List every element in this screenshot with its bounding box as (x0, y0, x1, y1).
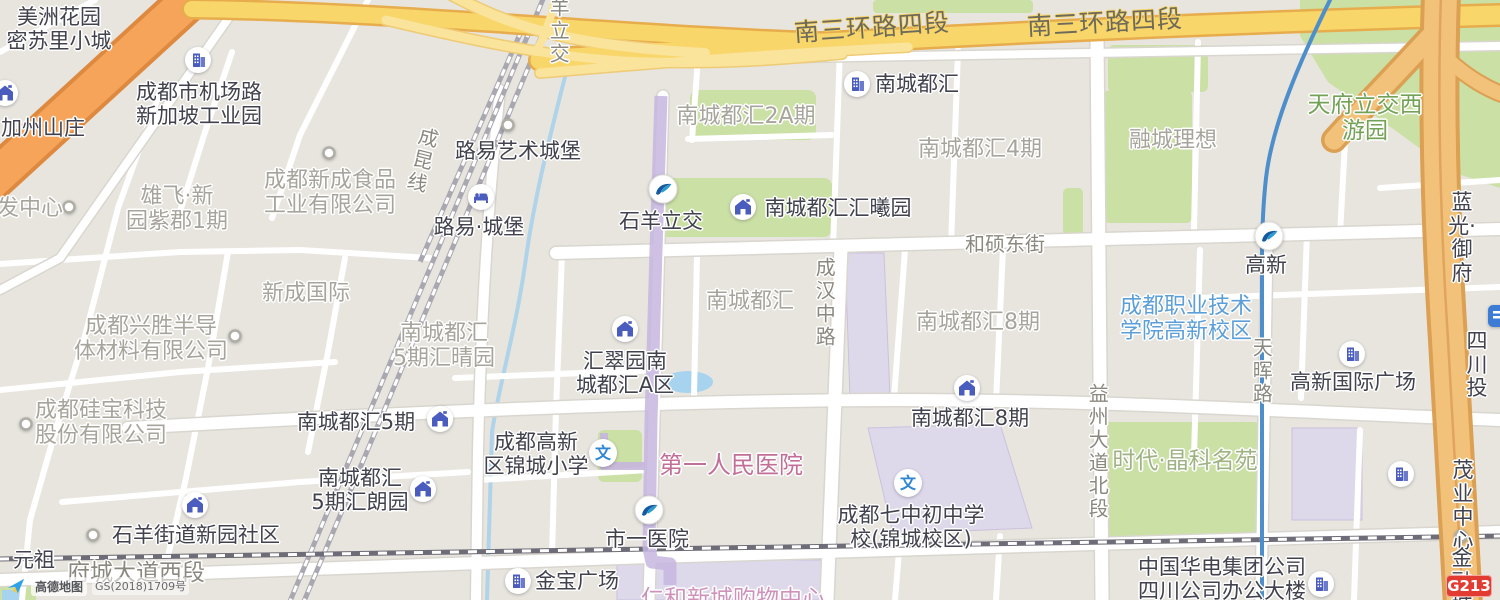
area-label-xincheng-food-co: 成都新成食品 工业有限公司 (264, 169, 396, 219)
road-label-chenghan-middle-road: 成汉中路 (813, 257, 836, 349)
area-label-ncdh-5qi-huiqingyuan: 南城都汇 5期汇晴园 (393, 322, 495, 372)
road-label-heshuo-east-street: 和硕东街 (965, 233, 1045, 256)
hospital-strip (845, 253, 890, 398)
poi-label-ncdh-8qi[interactable]: 南城都汇8期 (911, 407, 1029, 431)
poi-label-jincheng-primary-school[interactable]: 成都高新 区锦城小学 (484, 431, 589, 478)
home-icon-huicuiyuan-a[interactable] (611, 315, 639, 347)
poi-label-renhe-xincheng-mall[interactable]: 仁和新城购物中心 (641, 586, 825, 600)
home-icon-huixiyuan[interactable] (729, 193, 757, 225)
poi-label-vocational-college-gaoxin[interactable]: 成都职业技术 学院高新校区 (1120, 295, 1252, 345)
road-label-tianhui-road: 天晖路 (1250, 337, 1273, 406)
area-label-meizhou-garden[interactable]: 美洲花园 密苏里小城 (7, 6, 112, 53)
poi-label-huicuiyuan-a[interactable]: 汇翠园南 城都汇A区 (576, 350, 674, 397)
area-label-rongcheng-lixiang: 融城理想 (1129, 129, 1217, 154)
poi-label-ncdh-5qi[interactable]: 南城都汇5期 (297, 411, 415, 435)
area-label-xiongfei-zijun-1qi: 雄飞·新 园紫郡1期 (126, 185, 228, 235)
dot-icon-xingsheng-semiconductor[interactable] (227, 328, 243, 348)
poi-label-luyi-art-castle[interactable]: 路易艺术城堡 (455, 140, 581, 164)
poi-label-ncdh-huixiyuan[interactable]: 南城都汇汇曦园 (765, 197, 912, 221)
poi-label-gaoxin-international-plaza[interactable]: 高新国际广场 (1290, 371, 1416, 395)
poi-label-chengdu-no7-middle-school[interactable]: 成都七中初中学 校(锦城校区) (838, 504, 985, 551)
dot-icon-xincheng-food[interactable] (321, 145, 337, 165)
area-label-ncdh-4qi: 南城都汇4期 (918, 138, 1042, 163)
building-icon-maoye-center[interactable] (1387, 460, 1415, 492)
poi-label-huadian-group[interactable]: 中国华电集团公司 四川公司办公大楼 (1138, 556, 1306, 600)
park-label-tianfu-interchange-west-park[interactable]: 天府立交西游园 (1298, 92, 1433, 144)
building-icon-ncdh[interactable] (843, 70, 871, 102)
poi-label-yuanzu[interactable]: 元祖 (13, 549, 55, 573)
partial-poi-icon-right-edge[interactable] (1487, 304, 1500, 332)
building-icon-airport-industrial-park[interactable] (184, 46, 212, 78)
building-icon-huadian[interactable] (1307, 570, 1335, 600)
school-icon-jincheng-primary[interactable]: 文 (588, 438, 618, 472)
dot-icon-luyi-art-castle[interactable] (500, 117, 516, 137)
metro-icon-shiyang-lijiao[interactable] (648, 174, 678, 208)
road-label-yizhou-avenue-north: 益州大道北段 (1086, 383, 1109, 521)
area-label-fa-center: 发中心 (0, 197, 63, 222)
building-icon-gaoxin-plaza[interactable] (1338, 340, 1366, 372)
building-icon-jinbao-plaza[interactable] (504, 567, 532, 599)
station-label-gaoxin[interactable]: 高新 (1245, 254, 1287, 278)
home-icon-ncdh-5qi[interactable] (426, 405, 454, 437)
area-label-shidai-jingke: 时代·晶科名苑 (1112, 448, 1257, 474)
area-label-ncdh-center: 南城都汇 (706, 290, 794, 315)
poi-label-shiyang-xinyuan-community[interactable]: 石羊街道新园社区 (112, 524, 280, 548)
amap-logo-icon (6, 576, 26, 596)
home-icon-left-edge[interactable] (0, 79, 19, 111)
svg-text:文: 文 (595, 444, 612, 463)
poi-label-airport-singapore-industrial-park[interactable]: 成都市机场路 新加坡工业园 (136, 81, 262, 128)
poi-label-first-peoples-hospital[interactable]: 第一人民医院 (659, 452, 803, 479)
poi-label-ncdh[interactable]: 南城都汇 (875, 73, 959, 97)
park-shidai-jingke (1102, 422, 1262, 538)
poi-label-sichuan-investment[interactable]: 四川投 (1466, 330, 1489, 401)
poi-label-ncdh-5qi-huilangyuan[interactable]: 南城都汇 5期汇朗园 (311, 467, 408, 514)
map-attribution: 高德地图 GS(2018)1709号 (6, 576, 189, 596)
home-icon-shiyang-community[interactable] (181, 491, 209, 523)
poi-label-jiazhou-villa[interactable]: 加州山庄 (1, 117, 85, 141)
amap-license: GS(2018)1709号 (92, 577, 189, 595)
svg-text:文: 文 (900, 474, 917, 493)
area-label-xincheng-international: 新成国际 (262, 282, 350, 307)
metro-icon-gaoxin[interactable] (1254, 221, 1284, 255)
area-label-ncdh-8qi: 南城都汇8期 (916, 311, 1040, 336)
dot-icon-guibao-technology[interactable] (18, 416, 34, 436)
poi-label-jinbao-plaza[interactable]: 金宝广场 (535, 570, 619, 594)
poi-label-luyi-castle[interactable]: 路易·城堡 (434, 216, 525, 240)
station-label-shiyang-lijiao[interactable]: 石羊立交 (619, 210, 703, 234)
hotel-icon-luyi-castle[interactable] (467, 183, 495, 215)
dot-icon-yuanzu[interactable] (85, 527, 101, 547)
area-label-ncdh-2a: 南城都汇2A期 (676, 105, 815, 130)
home-icon-ncdh-8qi[interactable] (953, 374, 981, 406)
map-canvas[interactable]: 美洲花园 密苏里小城加州山庄成都市机场路 新加坡工业园雄飞·新 园紫郡1期成都新… (0, 0, 1500, 600)
area-label-guibao-technology: 成都硅宝科技 股份有限公司 (35, 399, 167, 449)
home-icon-huilangyuan[interactable] (409, 475, 437, 507)
metro-icon-shiyi-hospital[interactable] (634, 495, 664, 529)
g213-road-shield: G213 (1446, 575, 1492, 597)
area-label-xingsheng-semiconductor: 成都兴胜半导 体材料有限公司 (74, 315, 228, 365)
poi-label-maoye-center[interactable]: 茂业中心 (1445, 459, 1482, 554)
dot-icon-fa-center[interactable] (61, 199, 77, 219)
station-label-shiyi-hospital[interactable]: 市一医院 (605, 528, 689, 552)
road-label-shiyang-interchange-ramp: 石羊立交 (547, 0, 570, 66)
amap-brand: 高德地图 (31, 577, 87, 596)
poi-label-languang-yufu[interactable]: 蓝光·御府 (1443, 191, 1481, 286)
school-icon-no7-middle[interactable]: 文 (893, 468, 923, 502)
